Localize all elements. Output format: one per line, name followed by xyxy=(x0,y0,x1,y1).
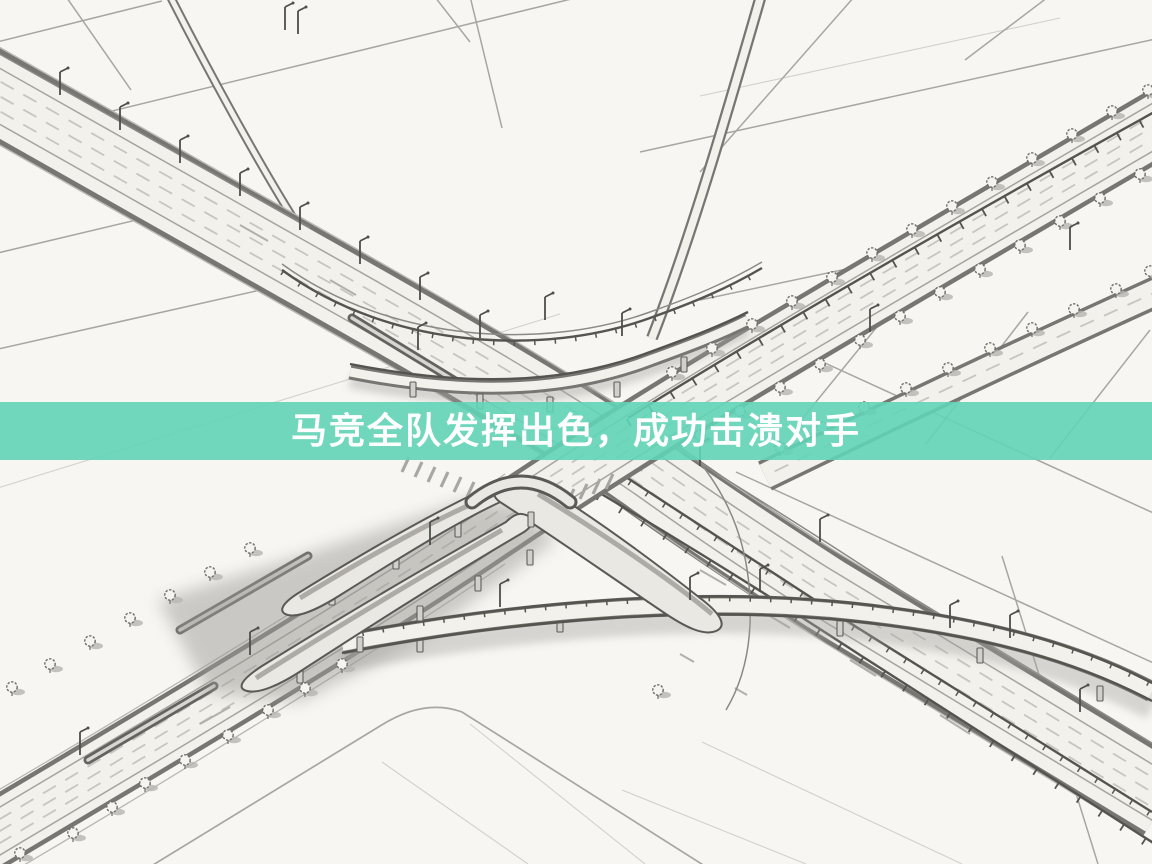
headline-text: 马竞全队发挥出色，成功击溃对手 xyxy=(291,413,861,449)
headline-banner: 马竞全队发挥出色，成功击溃对手 xyxy=(0,402,1152,460)
article-hero: 马竞全队发挥出色，成功击溃对手 xyxy=(0,0,1152,864)
